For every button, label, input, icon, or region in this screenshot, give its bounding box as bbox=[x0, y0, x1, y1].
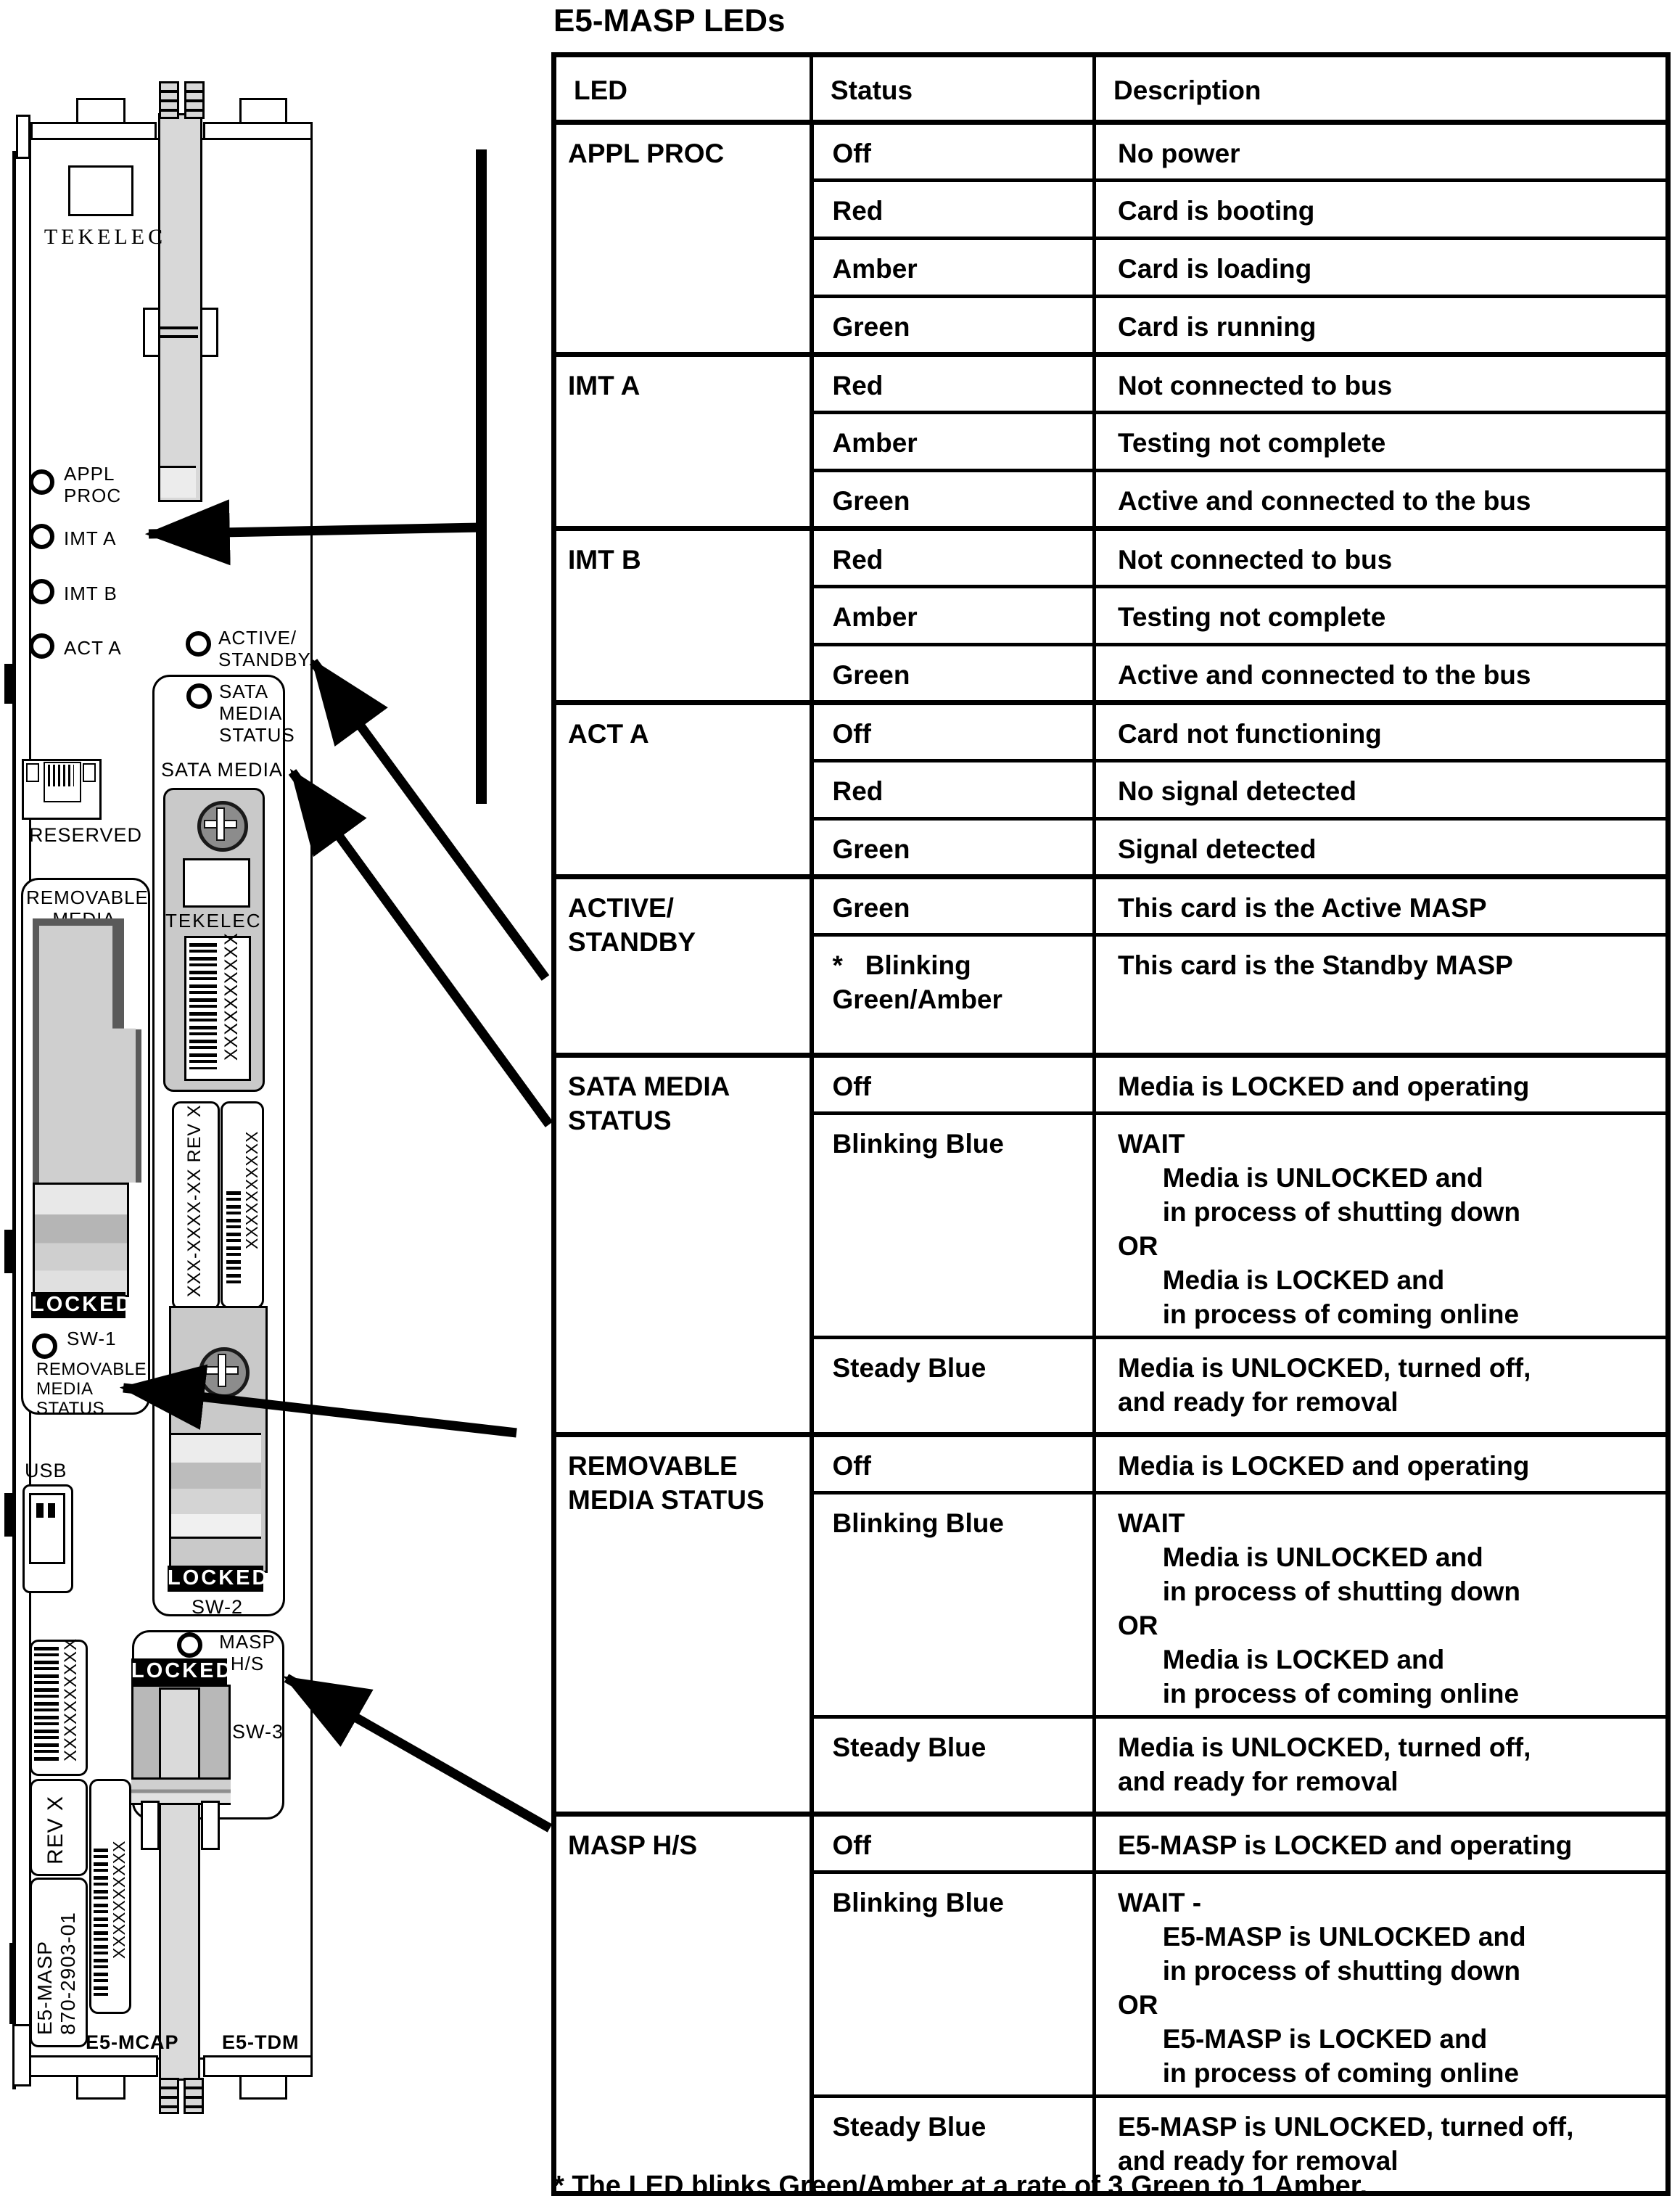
callout-bracket-bar bbox=[476, 149, 487, 804]
imt-a-arrow bbox=[149, 527, 481, 534]
page: E5-MASP LEDs LED Status Description APPL… bbox=[0, 0, 1672, 2212]
masp-hs-arrow bbox=[287, 1678, 550, 1828]
callout-arrows bbox=[0, 0, 1672, 2212]
removable-media-status-arrow bbox=[123, 1388, 516, 1433]
active-standby-arrow bbox=[313, 662, 545, 978]
sata-media-status-arrow bbox=[292, 772, 549, 1124]
